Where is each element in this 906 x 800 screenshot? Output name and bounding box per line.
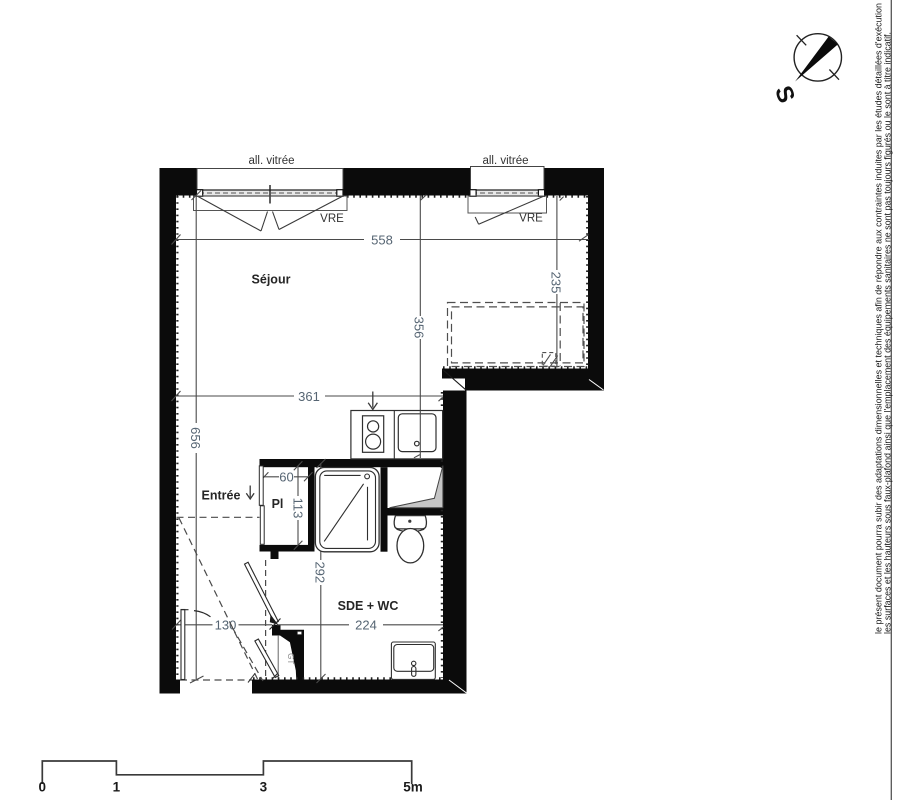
svg-text:1: 1 xyxy=(113,780,121,795)
svg-text:5m: 5m xyxy=(403,780,423,795)
svg-text:VRE: VRE xyxy=(519,213,543,225)
svg-text:224: 224 xyxy=(355,618,377,633)
svg-text:Séjour: Séjour xyxy=(252,273,291,287)
svg-text:235: 235 xyxy=(548,272,563,294)
svg-text:les surfaces et les hauteurs s: les surfaces et les hauteurs sous faux-p… xyxy=(883,32,894,634)
svg-text:356: 356 xyxy=(411,317,426,339)
svg-text:292: 292 xyxy=(312,561,327,583)
svg-text:VRE: VRE xyxy=(320,213,344,225)
svg-text:Entrée: Entrée xyxy=(202,489,241,503)
svg-text:113: 113 xyxy=(290,498,305,519)
svg-text:Pl: Pl xyxy=(272,497,284,511)
svg-text:all. vitrée: all. vitrée xyxy=(248,155,294,167)
svg-text:GT: GT xyxy=(286,653,295,664)
svg-text:361: 361 xyxy=(298,389,320,404)
svg-text:656: 656 xyxy=(188,427,203,449)
svg-text:558: 558 xyxy=(371,232,393,247)
svg-text:60: 60 xyxy=(279,469,293,484)
svg-text:SDE + WC: SDE + WC xyxy=(338,599,399,613)
svg-text:0: 0 xyxy=(39,780,47,795)
svg-text:3: 3 xyxy=(260,780,268,795)
svg-text:130: 130 xyxy=(215,618,237,633)
svg-text:all. vitrée: all. vitrée xyxy=(482,155,528,167)
